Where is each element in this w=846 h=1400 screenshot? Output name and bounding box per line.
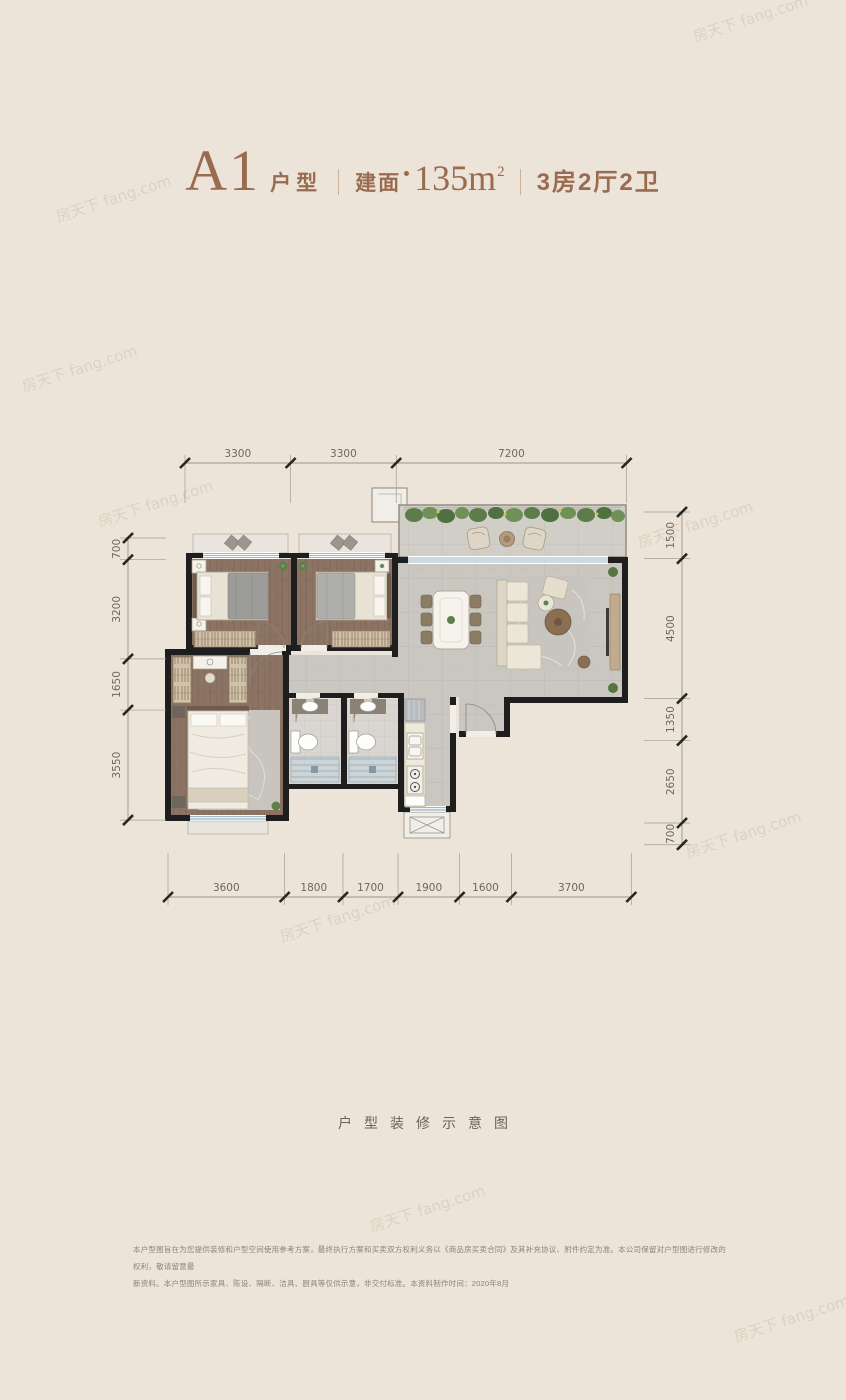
dim-label: 2650 [665,768,677,795]
dim-label: 1350 [665,706,677,733]
sink [360,702,376,712]
rooms-summary: 3房2厅2卫 [537,162,661,197]
watermark-text: 房天下 fang.com [20,342,140,396]
bay-window-master [188,821,268,834]
header-divider [520,169,521,195]
dim-label: 1600 [472,882,499,894]
disclaimer-line-1: 本户型图旨在为您提供装修和户型空间使用参考方案，最终执行方案和买卖双方权利义务以… [133,1241,733,1275]
stool [578,656,590,668]
plan-caption: 户型装修示意图 [0,1113,846,1133]
sink [302,702,318,712]
dim-label: 1700 [357,882,384,894]
pillow [374,597,385,616]
area-value: 135m [414,160,496,196]
dim-label: 1650 [111,671,123,698]
plant [272,802,281,811]
equipment-platform [404,812,450,838]
wardrobe [194,631,256,647]
pillow [200,576,211,595]
pillow [374,576,385,595]
dim-label: 4500 [665,615,677,642]
dim-chain-bottom: 360018001700190016003700 [163,853,636,905]
wardrobe [173,657,191,703]
pillow [191,714,217,726]
unit-suffix: 户型 [270,167,322,197]
watermark-text: 房天下 fang.com [96,477,216,531]
stove [407,766,423,794]
headboard [193,574,197,618]
watermark-text: 房天下 fang.com [278,892,398,946]
dim-chain-right: 1500450013502650700 [644,507,690,850]
pillow [220,714,246,726]
watermark-text: 房天下 fang.com [636,498,756,552]
dim-label: 1900 [415,882,442,894]
shower-drain [369,766,376,773]
headboard [387,574,391,618]
plan-header: A1 户型 建面 135m 2 3房2厅2卫 [0,142,846,222]
shower-drain [311,766,318,773]
dim-label: 700 [111,539,123,559]
toilet [299,734,318,750]
dim-label: 3550 [111,752,123,779]
plant [608,567,618,577]
disclaimer: 本户型图旨在为您提供装修和户型空间使用参考方案，最终执行方案和买卖双方权利义务以… [133,1241,733,1292]
kitchen-fixtures [405,699,425,807]
headboard [187,706,249,711]
area-superscript: 2 [497,164,505,181]
table-plant [447,616,455,624]
watermark-text: 房天下 fang.com [684,808,804,862]
sofa-back [497,580,507,666]
dim-chain-left: 700320016503550 [111,533,166,825]
tv [606,608,609,656]
blanket [317,573,355,619]
nightstand [172,796,185,808]
blanket [228,573,268,619]
nightstand [192,560,206,573]
cabinet [405,796,425,806]
unit-name: A1 [185,142,260,200]
dim-label: 3300 [224,448,251,460]
dim-label: 3700 [558,882,585,894]
lounge-chair [522,526,547,551]
dim-label: 1800 [300,882,327,894]
tv-console [610,594,620,670]
header-divider [338,169,339,195]
dim-label: 700 [665,824,677,844]
plant [608,683,618,693]
bay-pillows [224,535,357,550]
sofa-chaise [507,645,541,669]
toilet [357,734,376,750]
nightstand [172,706,185,718]
dim-label: 3300 [330,448,357,460]
disclaimer-line-2: 新资料。本户型图所示家具、陈设、隔断、洁具、厨具等仅供示意，非交付标准。本资料制… [133,1275,733,1292]
bed-throw [188,788,248,802]
fridge [405,699,425,721]
lounge-chair [466,526,490,550]
dressing-table [193,656,227,669]
dim-label: 3200 [111,596,123,623]
dim-label: 7200 [498,448,525,460]
wardrobe [229,657,247,703]
watermark-text: 房天下 fang.com [732,1292,846,1346]
wardrobe [332,631,390,647]
dim-label: 3600 [213,882,240,894]
floor-plan-page: A1 户型 建面 135m 2 3房2厅2卫 [0,0,846,1400]
stool [205,673,215,683]
pillow [200,597,211,616]
area-label: 建面 [355,167,401,197]
watermark-text: 房天下 fang.com [368,1182,488,1236]
area-dot-icon [404,171,409,176]
watermark-text: 房天下 fang.com [691,0,811,46]
